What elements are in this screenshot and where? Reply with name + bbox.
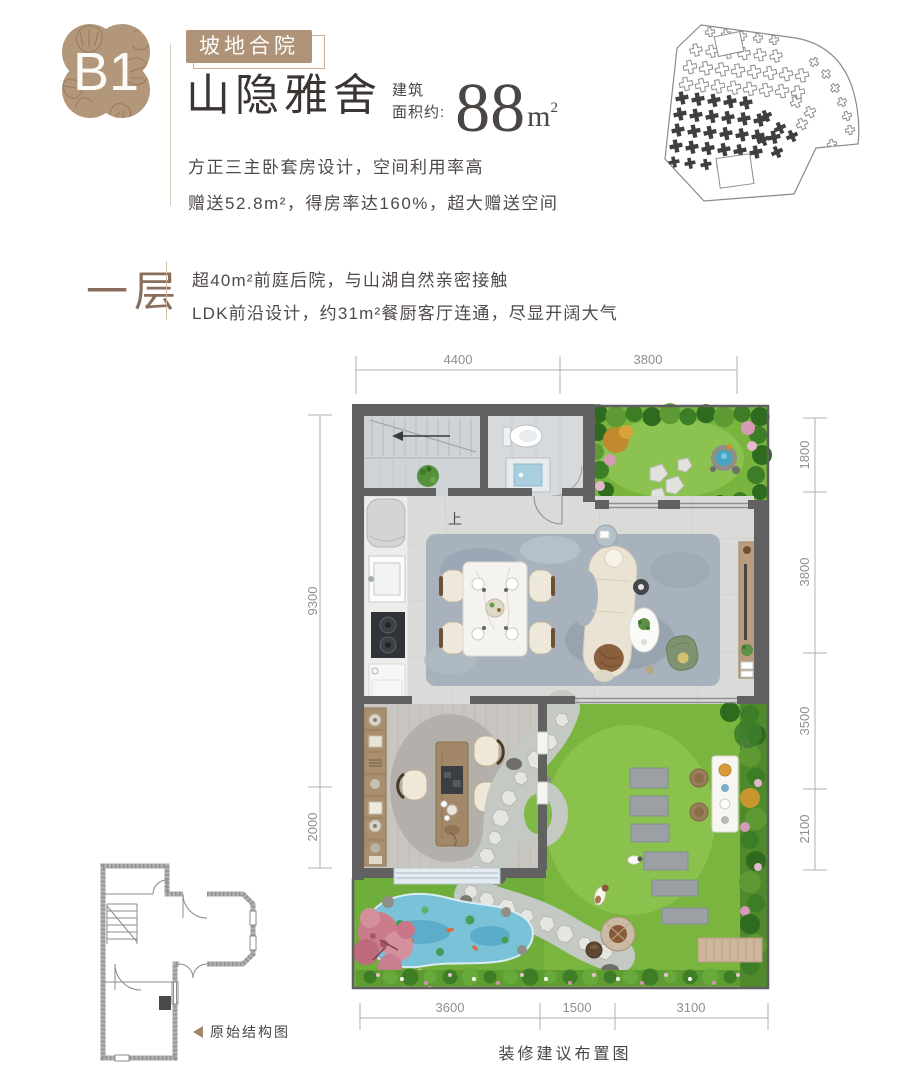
- site-amenity-2: [716, 154, 754, 188]
- threshold-step: [394, 868, 500, 884]
- site-plan-map: [646, 10, 905, 212]
- svg-text:3800: 3800: [797, 558, 812, 587]
- floor-section-divider: [166, 262, 167, 320]
- stair-label: 上: [448, 511, 462, 527]
- b1-badge: B1: [50, 14, 162, 130]
- svg-text:1800: 1800: [797, 441, 812, 470]
- coffee-table: [629, 608, 659, 652]
- feature-line-2: LDK前沿设计，约31m²餐厨客厅连通，尽显开阔大气: [192, 299, 618, 324]
- badge-label: B1: [73, 42, 139, 102]
- svg-text:3600: 3600: [436, 1000, 465, 1015]
- bathroom: [488, 416, 583, 496]
- page-title: 山隐雅舍: [186, 74, 382, 118]
- description-line-1: 方正三主卧套房设计，空间利用率高: [188, 153, 484, 178]
- area-label: 建筑 面积约:: [392, 80, 445, 124]
- svg-text:2000: 2000: [305, 813, 320, 842]
- tea-room-window: [537, 732, 548, 754]
- garden-mat: [698, 938, 762, 962]
- feature-line-1: 超40m²前庭后院，与山湖自然亲密接触: [192, 266, 509, 291]
- range-hood: [367, 499, 405, 547]
- floor-plan-rendering: 上 4400 3800 1800 3800 3500 2100: [300, 340, 830, 1040]
- tea-room-shelf: [364, 708, 386, 866]
- svg-text:9300: 9300: [305, 587, 320, 616]
- svg-text:3500: 3500: [797, 707, 812, 736]
- svg-text:2100: 2100: [797, 815, 812, 844]
- floor-label: 一层: [86, 258, 182, 319]
- tea-chair: [474, 736, 499, 766]
- svg-text:3800: 3800: [634, 352, 663, 367]
- tea-room-window: [537, 782, 548, 804]
- kitchen: [364, 496, 408, 704]
- product-tag: 坡地合院: [186, 30, 312, 63]
- plan-caption: 装修建议布置图: [300, 1040, 830, 1064]
- structure-shaft: [159, 996, 171, 1010]
- dimension-bottom: 3600 1500 3100: [360, 1000, 768, 1030]
- dimension-top: 4400 3800: [356, 352, 737, 394]
- left-triangle-icon: [193, 1026, 203, 1038]
- structure-caption: 原始结构图: [193, 1022, 290, 1042]
- flower-bed: [356, 969, 756, 987]
- svg-text:3100: 3100: [677, 1000, 706, 1015]
- header-divider: [170, 44, 171, 206]
- area-block: 建筑 面积约: 88 m2: [392, 80, 558, 137]
- dimension-left: 9300 2000: [305, 415, 332, 868]
- area-unit: m2: [527, 100, 558, 134]
- tea-chair: [402, 770, 427, 800]
- tv-console: [739, 542, 756, 678]
- area-value: 88: [455, 80, 525, 137]
- dimension-right: 1800 3800 3500 2100: [797, 418, 827, 870]
- svg-text:1500: 1500: [563, 1000, 592, 1015]
- garden-top: [588, 403, 772, 509]
- description-line-2: 赠送52.8m²，得房率达160%，超大赠送空间: [188, 189, 558, 214]
- svg-text:4400: 4400: [444, 352, 473, 367]
- page: B1 坡地合院 山隐雅舍 建筑 面积约: 88 m2 方正三主卧套房设计，空间利…: [0, 0, 905, 1085]
